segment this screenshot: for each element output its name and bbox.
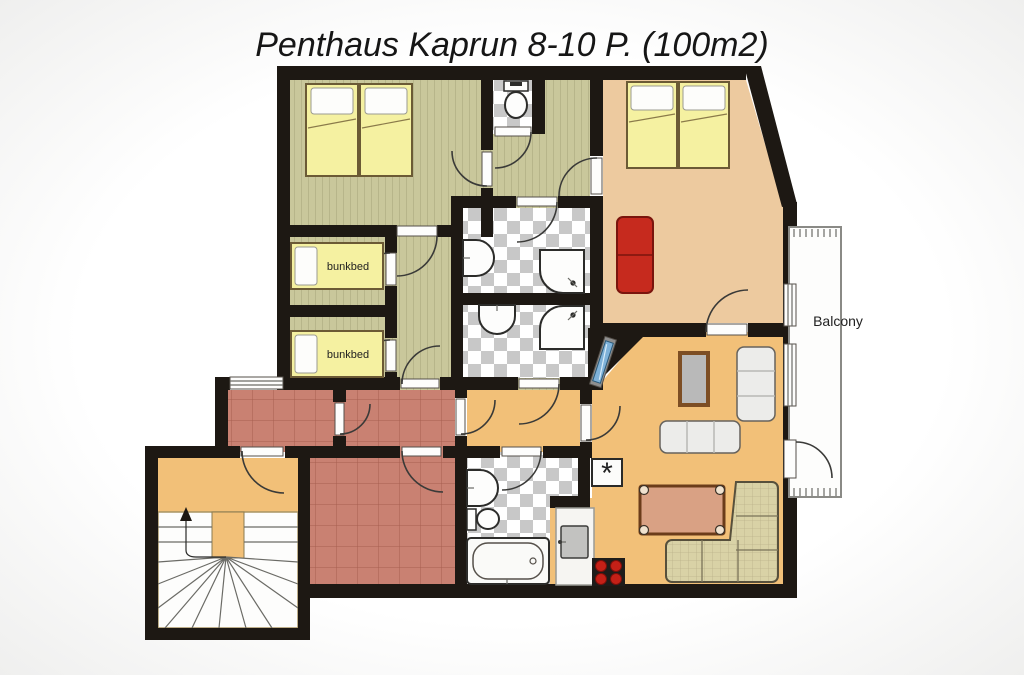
- wall-segment: [481, 78, 493, 150]
- staircase: [158, 507, 298, 628]
- side-table: [680, 353, 708, 405]
- sofa-white: [660, 421, 740, 453]
- wall-segment: [277, 66, 746, 80]
- bed-single: [360, 84, 412, 176]
- wall-segment: [550, 496, 590, 508]
- bunkbed-label: bunkbed: [327, 349, 369, 361]
- door-opening: [402, 447, 441, 456]
- door-opening: [386, 253, 396, 285]
- wall-segment: [215, 377, 228, 458]
- bathtub: [467, 538, 549, 584]
- wall-segment: [590, 78, 603, 156]
- door-opening: [241, 447, 283, 456]
- wall-segment: [463, 293, 603, 305]
- wall-segment: [283, 377, 400, 390]
- wall-segment: [578, 446, 590, 504]
- wall-segment: [298, 446, 310, 640]
- balcony-deck: [789, 227, 841, 497]
- door-opening: [581, 405, 591, 441]
- door-opening: [502, 447, 541, 456]
- room-vestibule-floor: [467, 390, 580, 452]
- bed-single: [306, 84, 358, 176]
- wall-segment: [385, 237, 397, 253]
- wall-segment: [451, 196, 463, 390]
- balcony-door-opening: [784, 440, 796, 478]
- toilet: [504, 81, 528, 118]
- wall-segment: [532, 78, 545, 134]
- stair-landing: [212, 512, 244, 558]
- wall-segment: [580, 390, 592, 404]
- wall-segment: [303, 584, 797, 598]
- wall-segment: [333, 390, 346, 402]
- window: [230, 377, 283, 389]
- wall-segment: [443, 446, 500, 458]
- wall-segment: [333, 436, 346, 452]
- wall-segment: [455, 436, 467, 588]
- floorplan-drawing: Balcony: [0, 0, 1024, 675]
- shower: [540, 250, 584, 293]
- bed-single: [679, 82, 729, 168]
- door-opening: [482, 152, 492, 186]
- wall-segment: [145, 446, 158, 640]
- door-opening: [335, 403, 344, 435]
- balcony-label: Balcony: [813, 313, 863, 329]
- door-opening: [707, 324, 747, 335]
- door-opening: [386, 340, 396, 371]
- door-opening: [401, 379, 439, 388]
- window: [784, 284, 796, 326]
- sink: [467, 470, 498, 506]
- kitchen-counter: [556, 508, 594, 585]
- door-opening: [591, 158, 602, 194]
- door-opening: [456, 399, 465, 435]
- room-bedroom-south-floor: [310, 452, 455, 584]
- bunkbed: bunkbed: [291, 331, 383, 377]
- balcony: Balcony: [789, 227, 863, 497]
- wall-segment: [283, 305, 390, 317]
- wall-segment: [277, 225, 397, 237]
- appliance-box: *: [592, 457, 622, 490]
- bed-single: [627, 82, 677, 168]
- wall-segment: [385, 372, 397, 390]
- door-opening: [397, 226, 437, 236]
- window: [784, 344, 796, 406]
- sofa-red: [617, 217, 653, 293]
- door-opening: [495, 127, 531, 136]
- door-opening: [519, 379, 559, 388]
- floorplan-page: Penthaus Kaprun 8-10 P. (100m2): [0, 0, 1024, 675]
- shower: [540, 306, 584, 349]
- bunkbed-label: bunkbed: [327, 261, 369, 273]
- sink: [479, 305, 515, 334]
- wall-segment: [481, 188, 493, 237]
- door-opening: [517, 197, 557, 206]
- wall-segment: [385, 286, 397, 338]
- sink: [463, 240, 494, 276]
- toilet: [467, 509, 499, 530]
- wall-segment: [145, 446, 240, 458]
- cooktop: [592, 558, 625, 586]
- sofa-white: [737, 347, 775, 421]
- bunkbed: bunkbed: [291, 243, 383, 289]
- wall-segment: [145, 628, 310, 640]
- dining-table: [640, 486, 725, 535]
- appliance-marker: *: [601, 457, 613, 490]
